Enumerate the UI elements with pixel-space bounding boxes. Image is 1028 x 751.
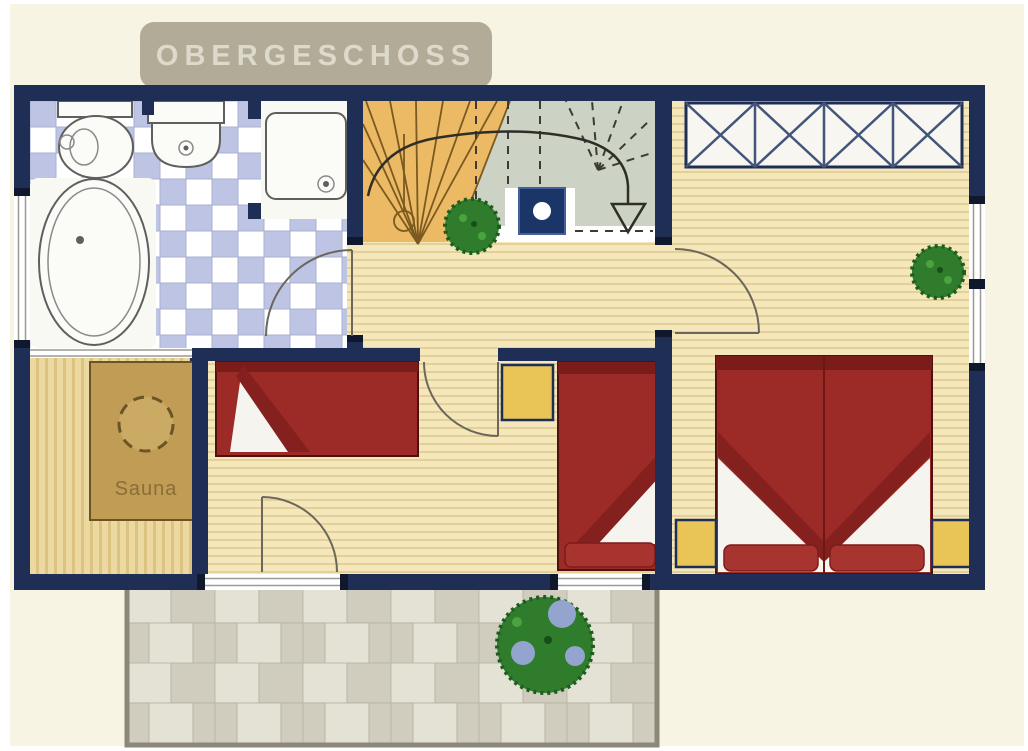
- bedroom-door-threshold: [655, 245, 672, 330]
- sauna-label: Sauna: [115, 478, 178, 500]
- wall-bathroom-hall: [347, 101, 363, 245]
- plant-icon: [912, 246, 964, 298]
- wardrobe-icon: [686, 103, 962, 167]
- wall-shower-stub-top: [248, 101, 261, 119]
- double-bed-icon: [716, 356, 932, 574]
- nightstand-icon: [502, 365, 553, 420]
- sink-icon: [148, 101, 224, 167]
- floorplan-canvas: OBERGESCHOSS: [0, 0, 1028, 751]
- wall-hall-twin-left: [190, 348, 420, 361]
- plant-icon: [445, 199, 499, 253]
- single-bed-icon: [216, 362, 418, 456]
- single-bed-icon: [558, 362, 662, 570]
- bathroom-door-threshold: [347, 245, 363, 340]
- title-banner: OBERGESCHOSS: [140, 22, 492, 88]
- wall-twin-master: [655, 330, 672, 574]
- wall-sauna-twin: [192, 348, 208, 574]
- wall-toilet-stub: [142, 101, 154, 115]
- window-icon: [969, 196, 985, 371]
- wall-bottom: [14, 574, 985, 590]
- window-icon: [14, 188, 30, 348]
- floorplan-page: OBERGESCHOSS: [0, 0, 1028, 751]
- wall-hall-twin-right: [498, 348, 672, 361]
- page-title: OBERGESCHOSS: [156, 40, 476, 72]
- wall-hall-master: [655, 101, 672, 245]
- sauna-heater-icon: [119, 397, 173, 451]
- bathtub-icon: [39, 179, 149, 345]
- flue-icon: [519, 188, 565, 234]
- sauna-cabin: Sauna: [90, 362, 198, 520]
- balcony: [127, 583, 657, 745]
- partition-bathroom-sauna: [30, 348, 192, 358]
- hallway-floor: [363, 242, 655, 361]
- balcony-bush-icon: [497, 597, 593, 693]
- window-icon: [550, 574, 650, 590]
- toilet-icon: [58, 101, 133, 178]
- wall-top: [14, 85, 985, 101]
- wall-shower-stub-bottom: [248, 203, 261, 219]
- balcony-door-glazing: [197, 574, 348, 590]
- winder-stairs-icon: [363, 101, 655, 244]
- shower-icon: [266, 113, 346, 199]
- nightstand-icon: [932, 520, 972, 567]
- nightstand-icon: [676, 520, 716, 567]
